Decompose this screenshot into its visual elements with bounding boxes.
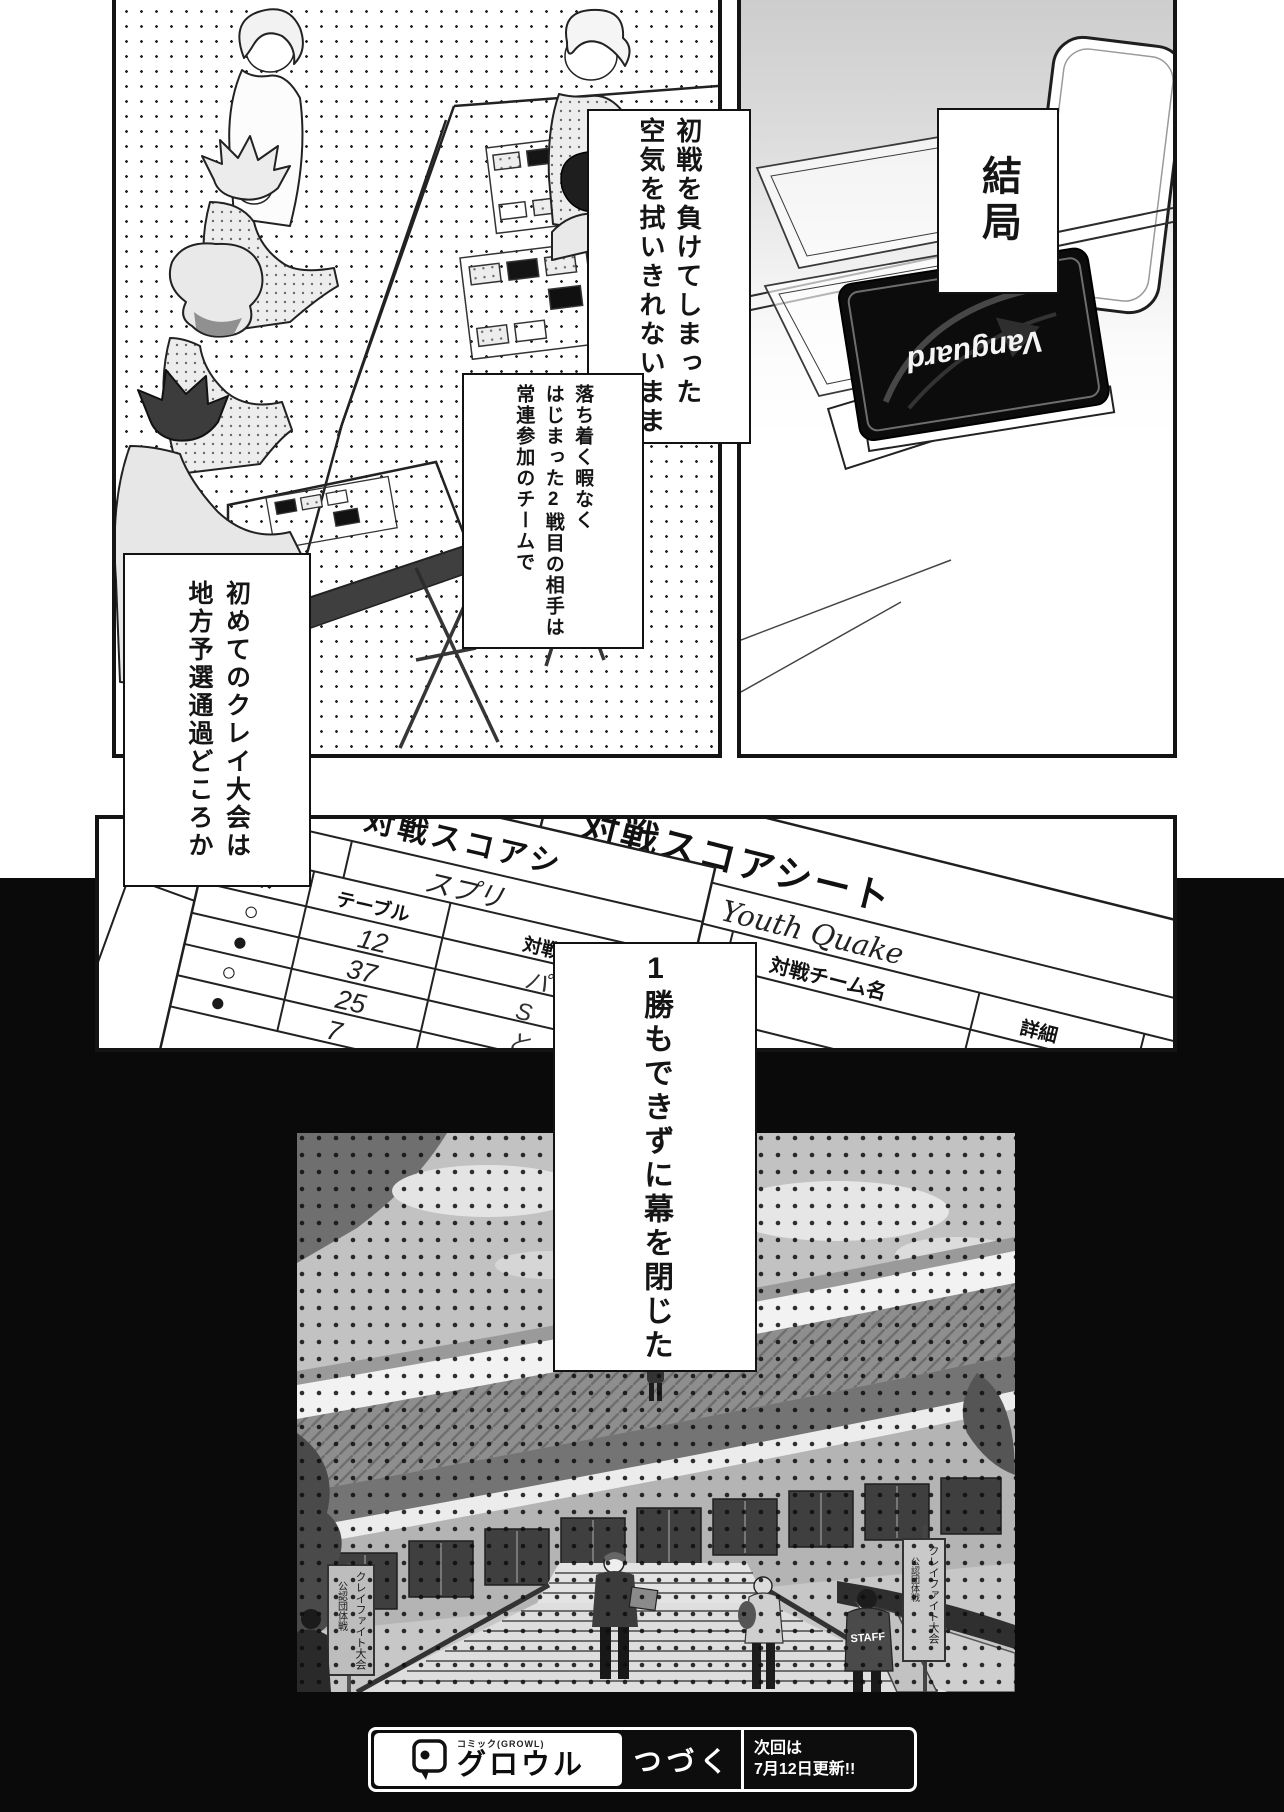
next-update-note: 次回は 7月12日更新!! bbox=[741, 1730, 914, 1789]
to-be-continued-label: つづく bbox=[625, 1730, 741, 1789]
narration-text: 初戦を負けてしまった bbox=[669, 117, 706, 436]
narration-box-3: 初めてのクレイ大会は 地方予選通過どころか bbox=[123, 553, 311, 887]
growl-logo: コミック(GROWL) グロウル bbox=[374, 1733, 622, 1786]
growl-logo-reading: コミック(GROWL) bbox=[457, 1740, 585, 1749]
growl-logo-text: グロウル bbox=[457, 1751, 585, 1780]
narration-box-4: 1勝もできずに幕を閉じた bbox=[553, 942, 757, 1372]
narration-text: 常連参加のチームで bbox=[509, 384, 538, 638]
next-update-line1: 次回は bbox=[754, 1739, 914, 1760]
next-update-line2: 7月12日更新!! bbox=[754, 1760, 914, 1781]
narration-text: 結局 bbox=[969, 155, 1027, 247]
narration-box-2: 落ち着く暇なく はじまった2戦目の相手は 常連参加のチームで bbox=[462, 373, 644, 649]
narration-text: 落ち着く暇なく bbox=[568, 384, 597, 638]
narration-text: 地方予選通過どころか bbox=[180, 580, 218, 860]
narration-text: 初めてのクレイ大会は bbox=[217, 580, 255, 860]
narration-text: はじまった2戦目の相手は bbox=[538, 384, 567, 638]
manga-page: Vanguard 対戦スコアシート bbox=[0, 0, 1284, 1812]
narration-text: 1勝もできずに幕を閉じた bbox=[633, 952, 677, 1363]
brand-reading: コミック bbox=[457, 1739, 497, 1749]
growl-logo-icon bbox=[411, 1738, 449, 1782]
narration-kekkyoku: 結局 bbox=[937, 108, 1059, 294]
footer-bar: コミック(GROWL) グロウル つづく 次回は 7月12日更新!! bbox=[368, 1727, 917, 1792]
brand-sub: (GROWL) bbox=[497, 1739, 545, 1749]
